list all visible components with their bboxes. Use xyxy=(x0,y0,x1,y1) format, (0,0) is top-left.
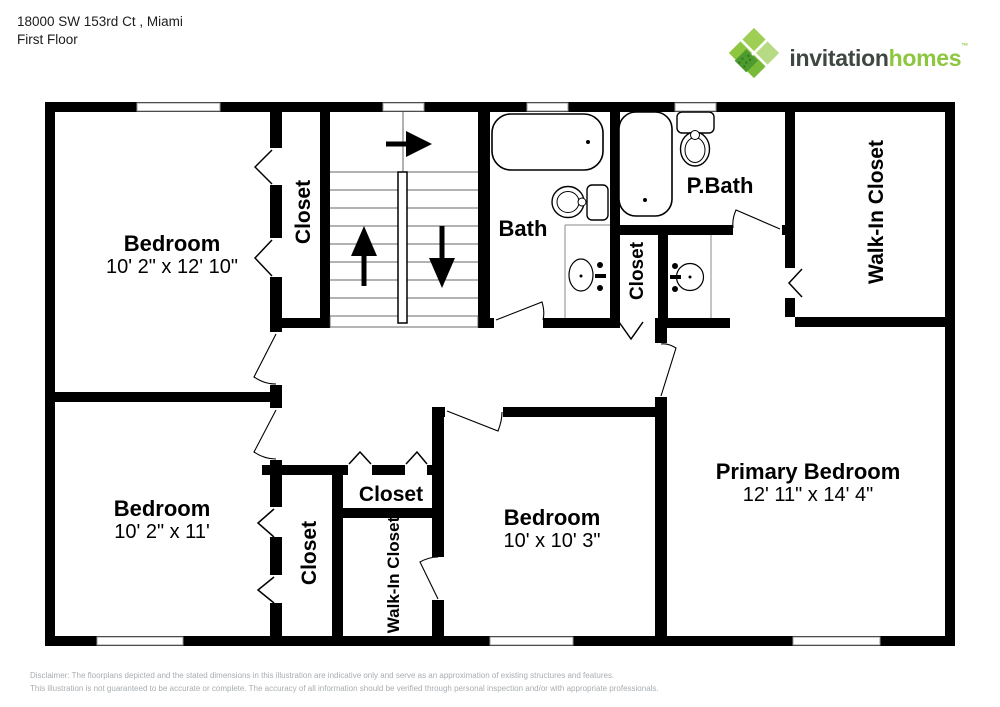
disclaimer-line-1: Disclaimer: The floorplans depicted and … xyxy=(30,669,659,682)
room-dims-primary-bedroom: 12' 11" x 14' 4" xyxy=(743,484,873,506)
window xyxy=(97,637,183,645)
chevron xyxy=(255,240,272,276)
window xyxy=(490,637,573,645)
chevron xyxy=(255,150,272,184)
room-label-bedroom-middle: Bedroom xyxy=(504,505,601,530)
pbath-door xyxy=(733,210,780,229)
primary-bedroom-door xyxy=(661,344,676,396)
room-label-bedroom-bottom-left: Bedroom xyxy=(114,496,211,521)
chevron xyxy=(258,509,274,537)
room-label-closet-mid: Closet xyxy=(627,241,648,300)
window xyxy=(383,103,424,111)
stairs-down-arrow xyxy=(429,226,455,288)
walls xyxy=(45,102,955,646)
bedroom-bottom-left-door xyxy=(254,410,276,459)
room-label-bath: Bath xyxy=(499,216,548,241)
stairs-turn-right-arrow xyxy=(386,131,432,157)
window xyxy=(793,637,880,645)
window xyxy=(527,103,568,111)
stairs-up-arrow xyxy=(351,226,377,286)
room-label-closet-bottom-left: Closet xyxy=(298,521,321,585)
toilet xyxy=(677,112,714,166)
pbath-vanity-sink xyxy=(670,235,711,318)
bath-vanity-sink xyxy=(565,225,610,318)
room-label-primary-bedroom: Primary Bedroom xyxy=(716,459,901,484)
chevron xyxy=(619,322,643,339)
faucet-icon xyxy=(670,263,681,292)
disclaimer-line-2: This illustration is not guaranteed to b… xyxy=(30,682,659,695)
staircase xyxy=(330,112,478,327)
chevron xyxy=(789,269,802,297)
room-dims-bedroom-top-left: 10' 2" x 12' 10" xyxy=(106,256,238,278)
room-label-bedroom-top-left: Bedroom xyxy=(124,231,221,256)
chevron xyxy=(406,452,427,464)
bathtub xyxy=(619,112,672,216)
floorplan-page: 18000 SW 153rd Ct , Miami First Floor in… xyxy=(0,0,1000,707)
room-label-closet-bottom: Closet xyxy=(359,483,423,506)
window xyxy=(137,103,220,111)
bathtub xyxy=(492,114,603,170)
stair-rail xyxy=(398,172,407,323)
room-dims-bedroom-bottom-left: 10' 2" x 11' xyxy=(114,521,210,543)
floorplan-drawing: Bedroom 10' 2" x 12' 10" Closet Bath P.B… xyxy=(0,0,1000,707)
room-label-primary-bath: P.Bath xyxy=(687,173,754,198)
bath-door xyxy=(496,302,544,320)
chevron xyxy=(349,452,371,464)
chevron xyxy=(258,577,274,603)
room-dims-bedroom-middle: 10' x 10' 3" xyxy=(503,530,600,552)
bedroom-top-left-door xyxy=(254,334,276,384)
window xyxy=(675,103,716,111)
faucet-icon xyxy=(595,262,606,291)
room-label-closet-top: Closet xyxy=(292,180,315,244)
disclaimer: Disclaimer: The floorplans depicted and … xyxy=(30,669,659,695)
room-label-walkin-closet-top: Walk-In Closet xyxy=(865,140,888,284)
toilet xyxy=(552,185,608,220)
walkin-closet-bottom-door xyxy=(420,557,438,599)
room-label-walkin-closet-bottom: Walk-In Closet xyxy=(384,516,403,633)
bedroom-middle-door xyxy=(447,411,502,431)
